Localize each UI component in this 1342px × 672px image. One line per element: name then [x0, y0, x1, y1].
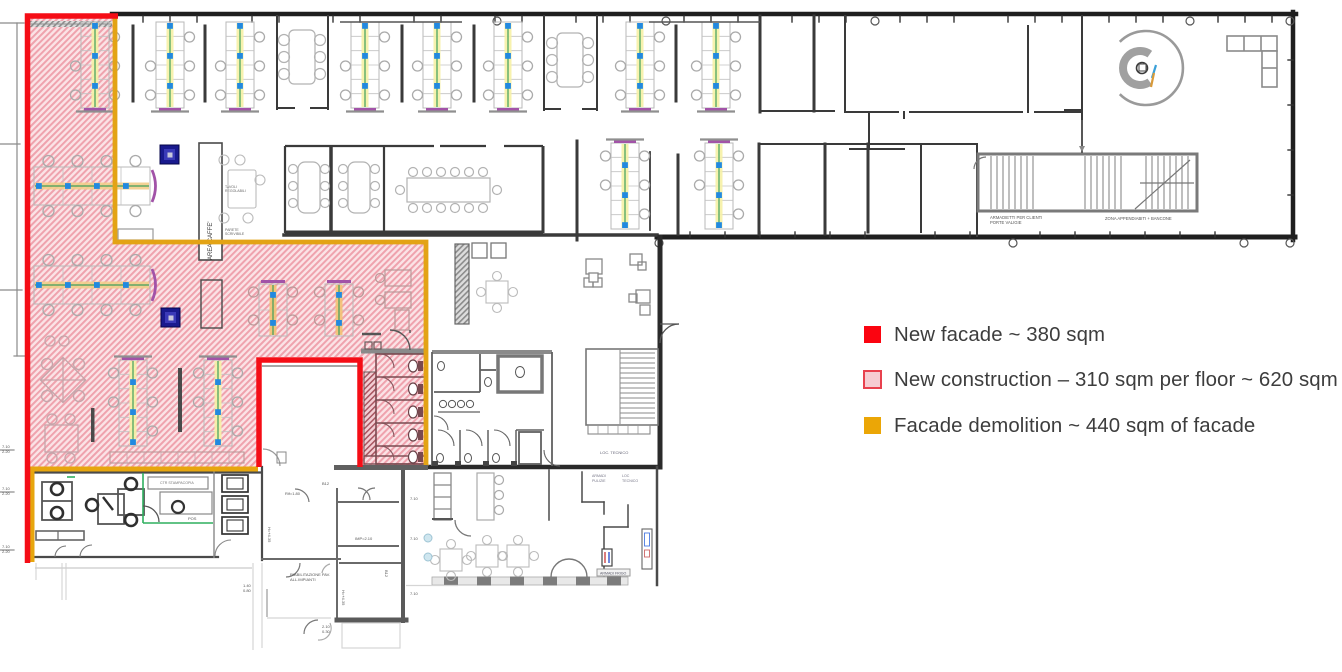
svg-text:CTR STAMPACOPIA: CTR STAMPACOPIA	[160, 481, 194, 485]
svg-text:ZONA APPENDIABITI + BANCONE: ZONA APPENDIABITI + BANCONE	[1105, 216, 1172, 221]
svg-text:IMP=2.10: IMP=2.10	[355, 536, 373, 541]
svg-text:2.20: 2.20	[2, 491, 11, 496]
svg-text:TECNICO: TECNICO	[622, 479, 638, 483]
svg-text:7.10: 7.10	[410, 591, 419, 596]
svg-text:7.10: 7.10	[410, 496, 419, 501]
svg-text:SCRIVIBILE: SCRIVIBILE	[225, 232, 245, 236]
svg-text:POS: POS	[188, 516, 197, 521]
svg-text:H=+4.35: H=+4.35	[267, 527, 272, 543]
svg-text:2.20: 2.20	[2, 449, 11, 454]
svg-text:New construction – 310 sqm per: New construction – 310 sqm per floor ~ 6…	[894, 369, 1338, 391]
svg-text:0.30: 0.30	[322, 629, 331, 634]
svg-text:PULIZIE: PULIZIE	[592, 479, 606, 483]
svg-text:ALL.IMPIANTI: ALL.IMPIANTI	[290, 577, 316, 582]
svg-text:0.80: 0.80	[243, 588, 252, 593]
svg-text:B12: B12	[322, 481, 330, 486]
svg-text:ARMADI: ARMADI	[592, 474, 606, 478]
svg-text:New facade ~ 380 sqm: New facade ~ 380 sqm	[894, 324, 1105, 346]
svg-text:PORTE VALIGIE: PORTE VALIGIE	[990, 220, 1022, 225]
svg-text:LOC: LOC	[622, 474, 630, 478]
svg-text:ARMADI FRIGO: ARMADI FRIGO	[600, 572, 627, 576]
svg-text:H=+4.35: H=+4.35	[341, 590, 346, 606]
svg-text:2.20: 2.20	[2, 549, 11, 554]
svg-text:LOC. TECNICO: LOC. TECNICO	[600, 450, 628, 455]
svg-text:Facade demolition ~ 440 sqm o: Facade demolition ~ 440 sqm of facade	[894, 415, 1255, 437]
svg-text:7.10: 7.10	[410, 536, 419, 541]
svg-text:Rif=1.80: Rif=1.80	[285, 491, 301, 496]
svg-text:B12: B12	[384, 570, 389, 578]
